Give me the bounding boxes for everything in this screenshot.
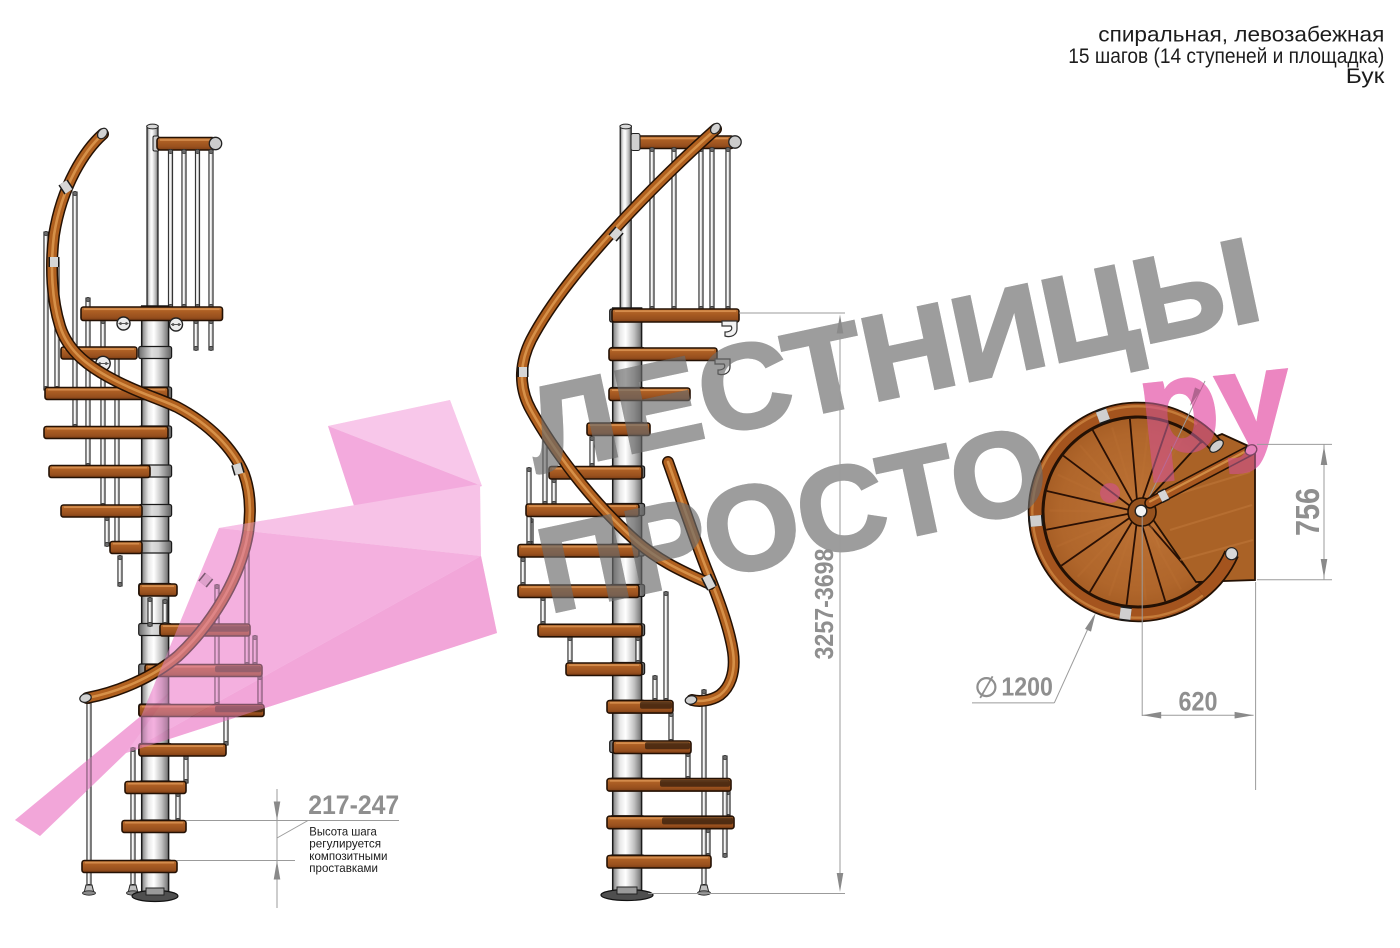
svg-text:3257-3698: 3257-3698 bbox=[809, 549, 839, 660]
svg-text:Бук: Бук bbox=[1346, 64, 1385, 88]
svg-text:спиральная, левозабежная: спиральная, левозабежная bbox=[1098, 22, 1384, 46]
svg-text:проставками: проставками bbox=[309, 861, 378, 875]
svg-text:756: 756 bbox=[1289, 488, 1326, 536]
svg-text:1200: 1200 bbox=[1001, 674, 1053, 702]
svg-text:ру: ру bbox=[1131, 321, 1298, 483]
svg-text:620: 620 bbox=[1179, 687, 1218, 717]
svg-text:217-247: 217-247 bbox=[308, 790, 399, 820]
svg-text:15 шагов (14 ступеней и площад: 15 шагов (14 ступеней и площадка) bbox=[1068, 44, 1384, 68]
